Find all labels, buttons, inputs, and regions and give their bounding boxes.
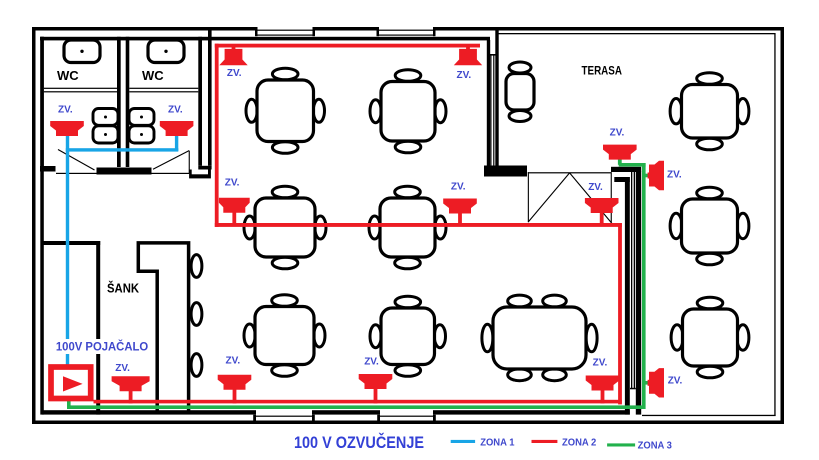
svg-text:ZV.: ZV. bbox=[227, 68, 242, 79]
svg-text:ZV.: ZV. bbox=[58, 105, 73, 116]
svg-text:ZV.: ZV. bbox=[225, 178, 240, 189]
svg-text:ZV.: ZV. bbox=[593, 358, 608, 369]
svg-text:100V POJAČALO: 100V POJAČALO bbox=[56, 339, 148, 354]
svg-text:TERASA: TERASA bbox=[582, 65, 623, 78]
svg-text:ZV.: ZV. bbox=[588, 182, 603, 193]
svg-text:ZV.: ZV. bbox=[226, 356, 241, 367]
svg-text:ZV.: ZV. bbox=[610, 128, 625, 139]
svg-text:ZV.: ZV. bbox=[668, 376, 683, 387]
svg-text:ZV.: ZV. bbox=[451, 182, 466, 193]
svg-text:WC: WC bbox=[142, 68, 164, 83]
svg-text:ZV.: ZV. bbox=[667, 170, 682, 181]
svg-text:ŠANK: ŠANK bbox=[107, 280, 139, 296]
svg-text:ZONA 1: ZONA 1 bbox=[480, 437, 515, 449]
svg-text:ZV.: ZV. bbox=[364, 357, 379, 368]
svg-text:WC: WC bbox=[57, 68, 79, 83]
svg-text:ZONA 2: ZONA 2 bbox=[562, 437, 597, 449]
svg-text:100 V OZVUČENJE: 100 V OZVUČENJE bbox=[294, 432, 424, 452]
svg-text:ZV.: ZV. bbox=[457, 70, 472, 81]
svg-text:ZV.: ZV. bbox=[168, 105, 183, 116]
svg-text:ZV.: ZV. bbox=[115, 363, 130, 374]
svg-text:ZONA 3: ZONA 3 bbox=[638, 440, 673, 452]
